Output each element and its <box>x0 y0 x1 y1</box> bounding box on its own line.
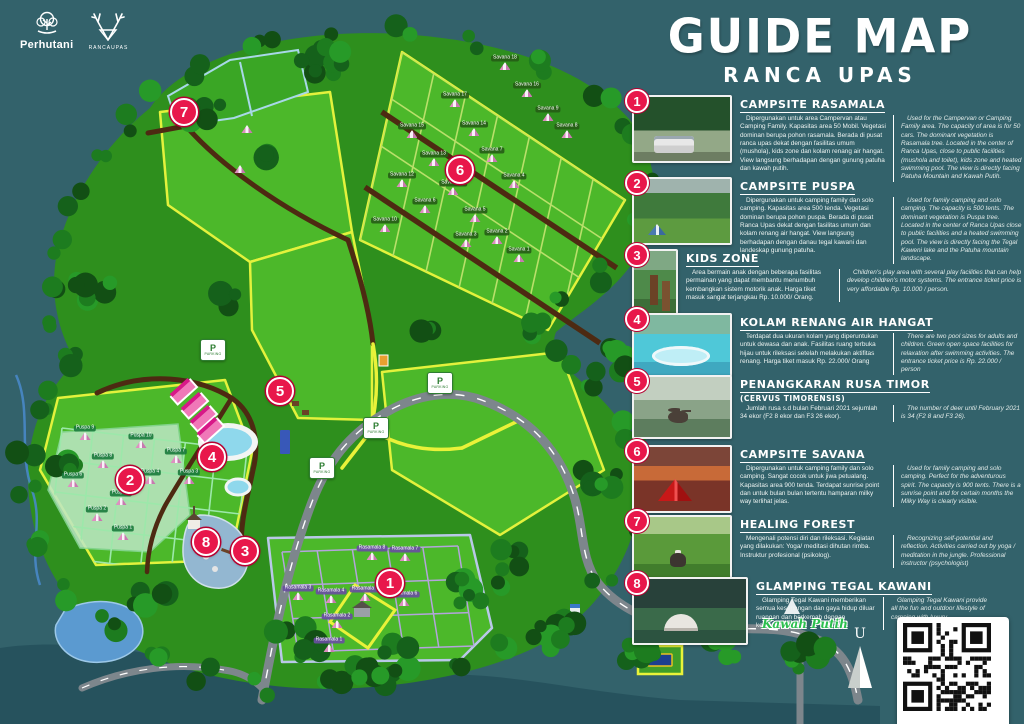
title-block: GUIDE MAP RANCA UPAS <box>625 14 1015 87</box>
legend-text-id: Dipergunakan untuk camping family dan so… <box>740 465 886 507</box>
legend-title-puspa: CAMPSITE PUSPA <box>740 180 855 195</box>
qr-code <box>897 617 1009 724</box>
glamping-photo: 8 <box>632 577 748 645</box>
legend-title-glamping: GLAMPING TEGAL KAWANI <box>756 580 932 595</box>
legend-item-penangkaran-rusa: 5 PENANGKARAN RUSA TIMOR (CERVUS TIMOREN… <box>632 375 1022 445</box>
compass: U <box>846 626 874 690</box>
legend-subtitle-rusa: (CERVUS TIMORENSIS) <box>740 394 1022 403</box>
campsite-savana-photo: 6 <box>632 445 732 513</box>
legend-text-en: The number of deer until February 2021 i… <box>893 405 1022 422</box>
meditating-person-shape <box>670 553 686 567</box>
deer-photo: 5 <box>632 375 732 439</box>
page-title: GUIDE MAP <box>625 13 1015 60</box>
deer-shape <box>668 411 688 423</box>
bale-building <box>280 430 290 454</box>
playground-shape <box>650 275 658 305</box>
perhutani-logo-text: Perhutani <box>20 39 73 51</box>
perhutani-logo: Perhutani <box>20 10 73 51</box>
stand-building <box>379 355 388 366</box>
legend-item-healing-forest: 7 HEALING FOREST Mengenali potensi diri … <box>632 515 1022 577</box>
dome-tent-shape <box>664 614 698 631</box>
legend-item-kolam-renang: 4 KOLAM RENANG AIR HANGAT Terdapat dua u… <box>632 313 1022 375</box>
legend-number-3: 3 <box>625 243 649 267</box>
legend-text-id: Mengenali potensi diri dan rileksasi. Ke… <box>740 535 886 568</box>
legend-title-healing-forest: HEALING FOREST <box>740 518 855 533</box>
guide-map-poster: Savana 18Savana 16Savana 17Savana 9Savan… <box>0 0 1024 724</box>
legend-number-4: 4 <box>625 307 649 331</box>
pond <box>226 479 250 495</box>
logo-group: Perhutani RANCAUPAS <box>20 10 129 51</box>
legend-number-2: 2 <box>625 171 649 195</box>
legend-number-7: 7 <box>625 509 649 533</box>
compass-arrow-icon <box>846 644 874 690</box>
legend-text-en: Used for family camping and solo camping… <box>893 465 1022 507</box>
legend-text-id: Dipergunakan untuk area Campervan atau C… <box>740 115 886 182</box>
page-subtitle: RANCA UPAS <box>625 63 1015 87</box>
rancaupas-logo: RANCAUPAS <box>87 10 129 51</box>
legend-title-kolam-renang: KOLAM RENANG AIR HANGAT <box>740 316 933 331</box>
swimming-pool-photo: 4 <box>632 313 732 377</box>
campsite-puspa-photo: 2 <box>632 177 732 245</box>
legend-number-6: 6 <box>625 439 649 463</box>
legend-item-campsite-rasamala: 1 CAMPSITE RASAMALA Dipergunakan untuk a… <box>632 95 1022 177</box>
red-tent-shape <box>658 479 692 501</box>
compass-north-label: U <box>854 626 866 642</box>
legend-item-campsite-puspa: 2 CAMPSITE PUSPA Dipergunakan untuk camp… <box>632 177 1022 249</box>
legend-title-rasamala: CAMPSITE RASAMALA <box>740 98 885 113</box>
legend-panel: 1 CAMPSITE RASAMALA Dipergunakan untuk a… <box>632 95 1022 647</box>
legend-text-id: Area bermain anak dengan beberapa fasili… <box>686 269 832 302</box>
legend-text-en: Children's play area with several play f… <box>839 269 1022 302</box>
legend-text-en: Used for the Campervan or Camping Family… <box>893 115 1022 182</box>
legend-number-8: 8 <box>625 571 649 595</box>
deer-antler-icon <box>87 10 129 44</box>
legend-number-5: 5 <box>625 369 649 393</box>
legend-text-id: Jumlah rusa s.d bulan Februari 2021 seju… <box>740 405 886 422</box>
kawah-putih-direction-label: Kawah Putih <box>762 617 848 631</box>
pool-shape <box>652 346 710 366</box>
campervan-shape <box>654 136 694 153</box>
legend-item-kids-zone: 3 KIDS ZONE Area bermain anak dengan beb… <box>632 249 1022 313</box>
legend-item-campsite-savana: 6 CAMPSITE SAVANA Dipergunakan untuk cam… <box>632 445 1022 515</box>
rancaupas-logo-text: RANCAUPAS <box>89 45 129 51</box>
legend-text-id: Terdapat dua ukuran kolam yang diperuntu… <box>740 333 886 375</box>
legend-title-rusa: PENANGKARAN RUSA TIMOR <box>740 378 930 393</box>
campsite-rasamala-photo: 1 <box>632 95 732 163</box>
legend-text-en: There are two pool sizes for adults and … <box>893 333 1022 375</box>
qr-pattern <box>903 623 991 711</box>
perhutani-tree-icon <box>32 10 62 38</box>
legend-number-1: 1 <box>625 89 649 113</box>
legend-text-en: Recognizing self-potential and reflectio… <box>893 535 1022 568</box>
healing-forest-photo: 7 <box>632 515 732 579</box>
tent-shape <box>648 224 666 235</box>
legend-title-kids-zone: KIDS ZONE <box>686 252 759 267</box>
legend-title-savana: CAMPSITE SAVANA <box>740 448 865 463</box>
